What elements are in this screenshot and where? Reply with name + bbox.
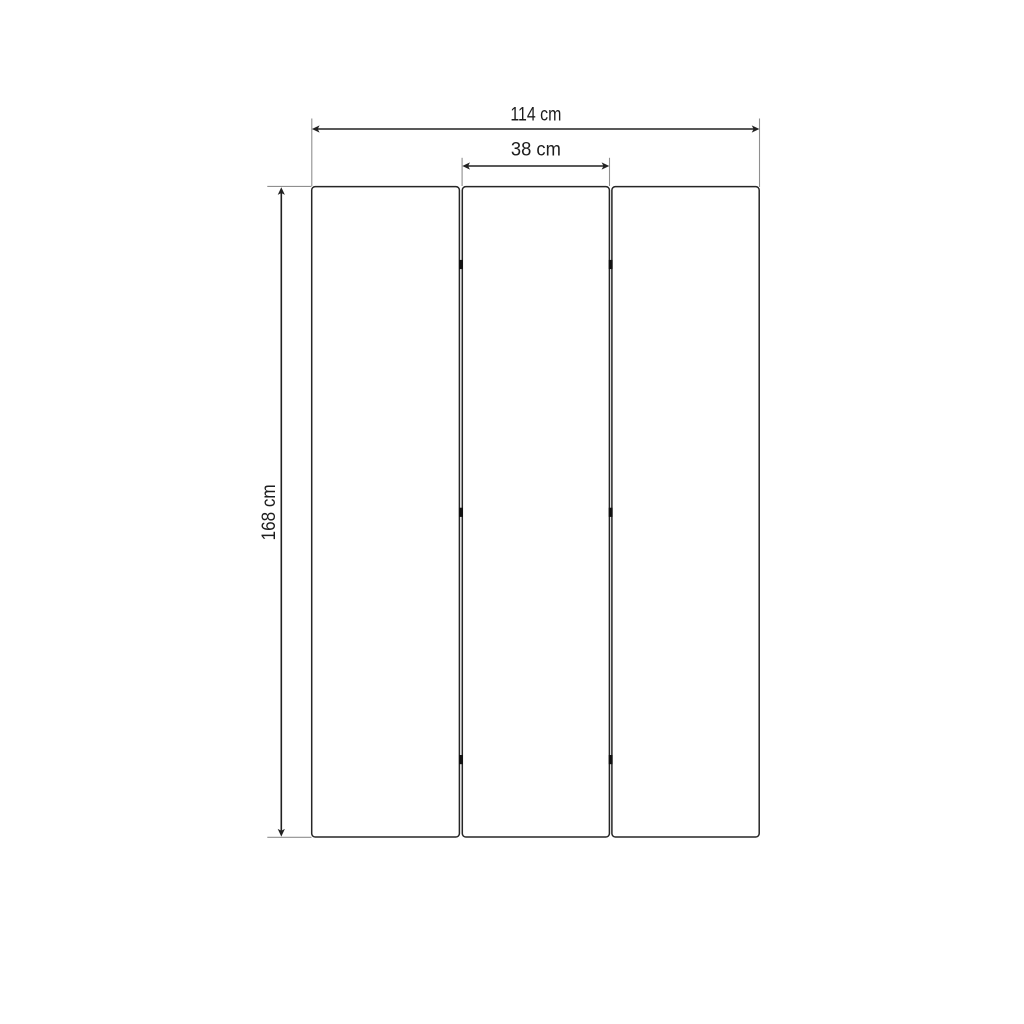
svg-text:168 cm: 168 cm: [258, 484, 280, 540]
svg-text:114 cm: 114 cm: [510, 104, 561, 126]
svg-text:38 cm: 38 cm: [511, 139, 561, 161]
